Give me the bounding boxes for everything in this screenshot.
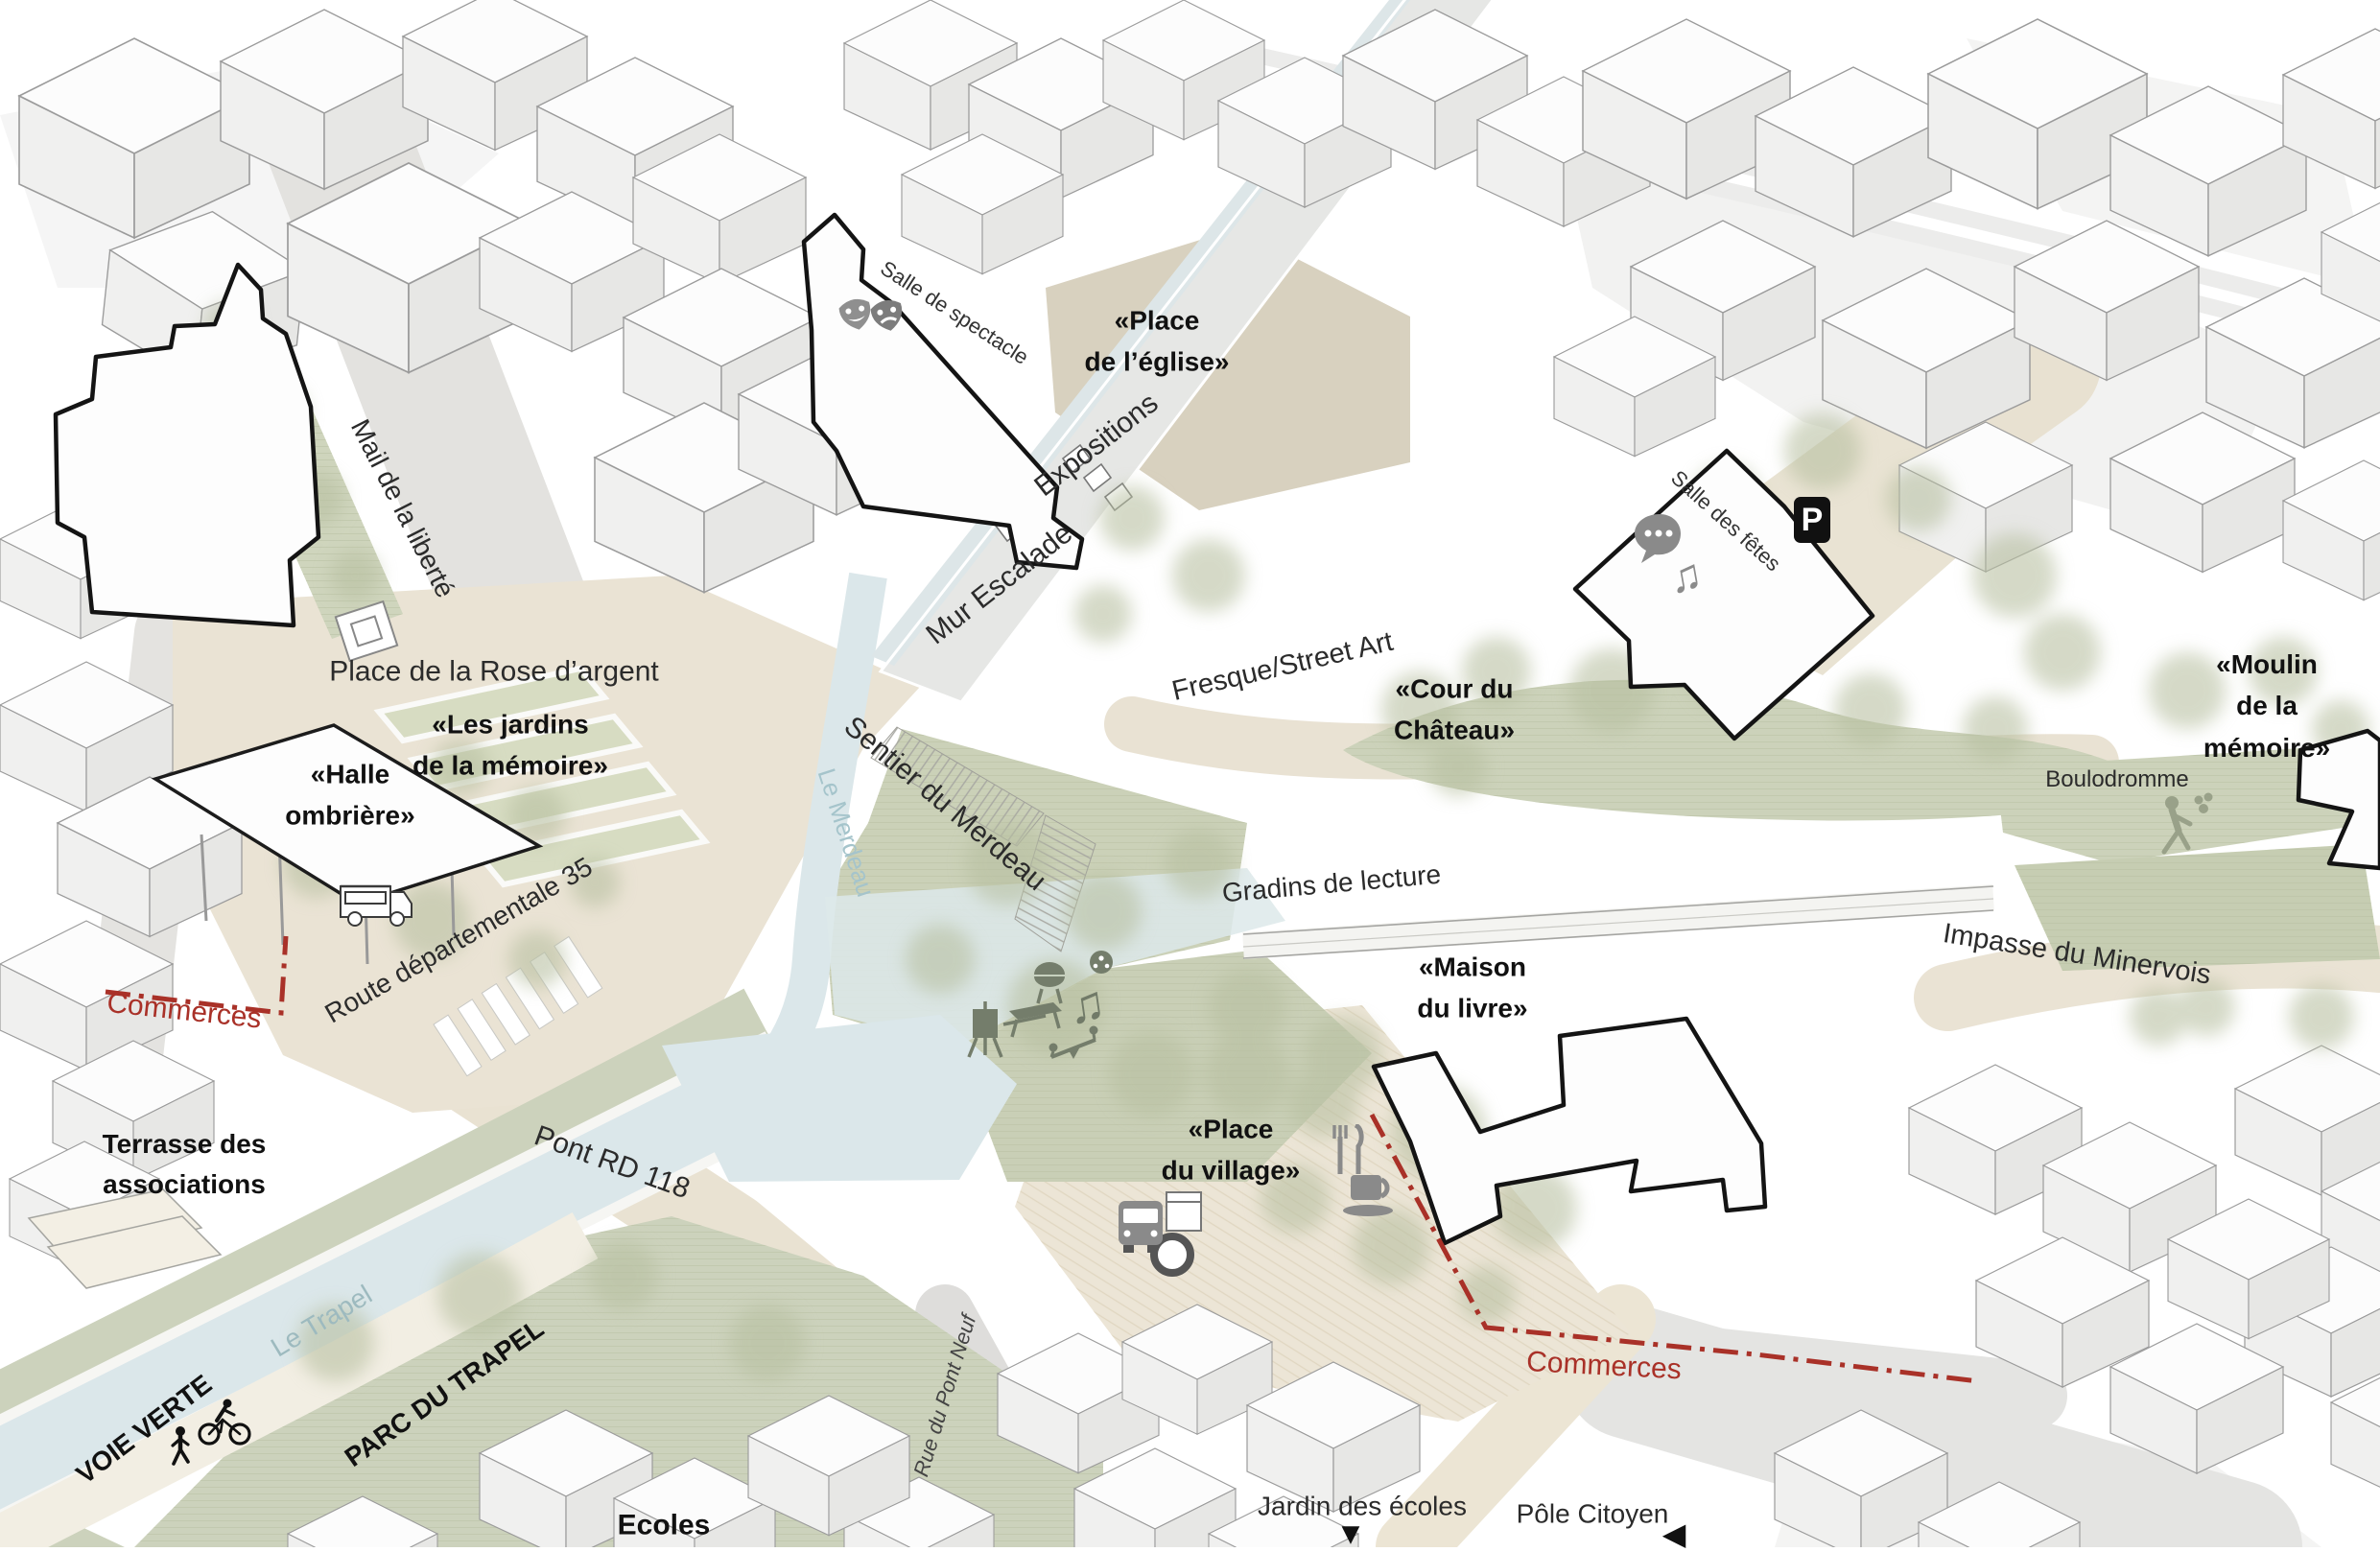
parking-icon: P (1794, 497, 1830, 543)
roundabout (1154, 1236, 1190, 1273)
bus-shelter (1166, 1192, 1201, 1231)
map-illustration (0, 0, 2380, 1547)
masterplan-map: Salle de spectacle «Place de l’église» E… (0, 0, 2380, 1547)
